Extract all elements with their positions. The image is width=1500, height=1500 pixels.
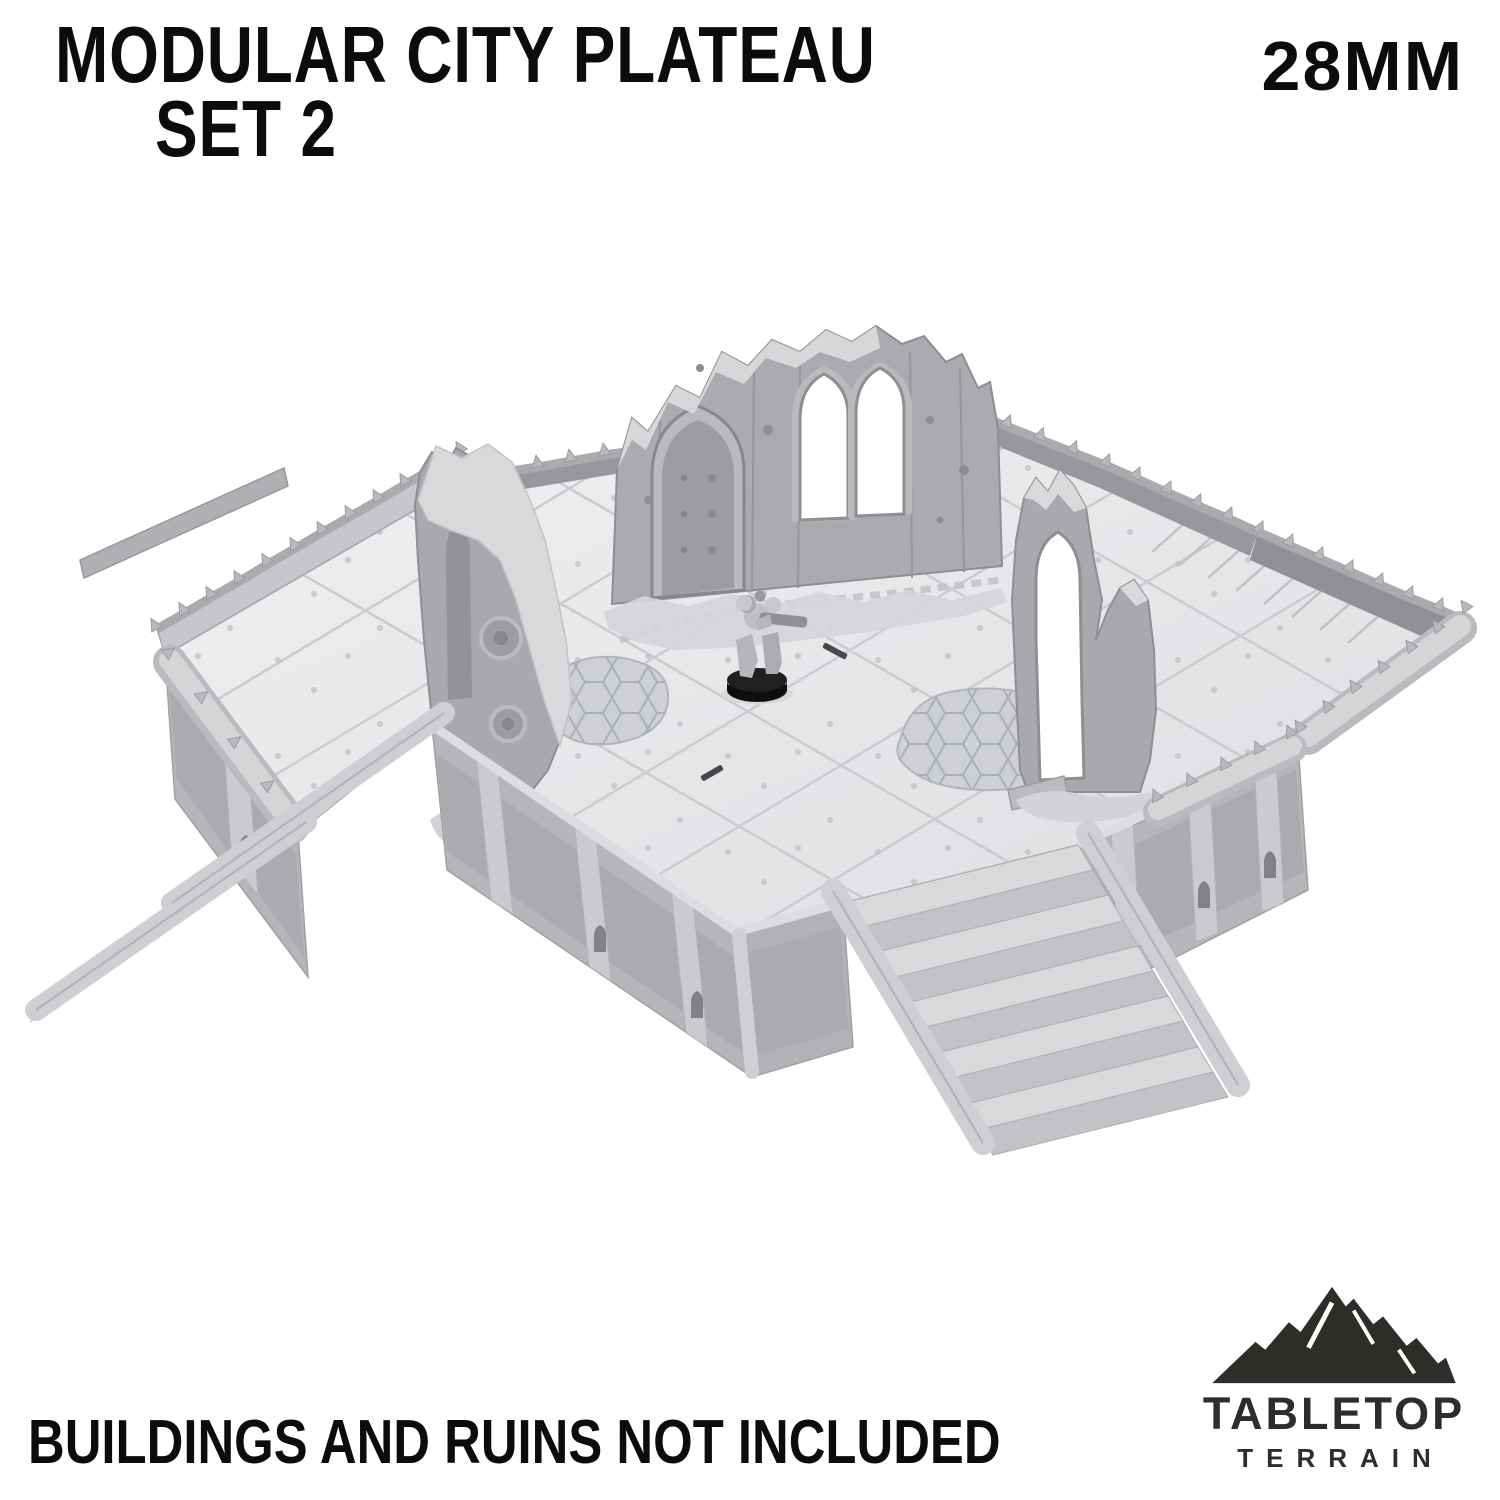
terrain-render (0, 0, 1500, 1500)
floor-tile-seams (100, 0, 1480, 1320)
plateau-floor (100, 0, 1480, 1320)
product-image-page: MODULAR CITY PLATEAU SET 2 28MM (0, 0, 1500, 1500)
brand-logo: TABLETOP TERRAIN (1194, 1281, 1474, 1474)
ruined-gothic-wall-center (604, 326, 1008, 650)
gothic-arch-opening (1036, 532, 1084, 780)
broken-beam (80, 468, 288, 578)
gothic-window (800, 374, 848, 520)
brand-wordmark-bottom: TERRAIN (1194, 1443, 1474, 1474)
mountain-icon (1206, 1281, 1462, 1389)
disclaimer-text: BUILDINGS AND RUINS NOT INCLUDED (28, 1407, 1214, 1478)
brand-wordmark-top: TABLETOP (1194, 1388, 1474, 1440)
gothic-window (856, 368, 904, 516)
